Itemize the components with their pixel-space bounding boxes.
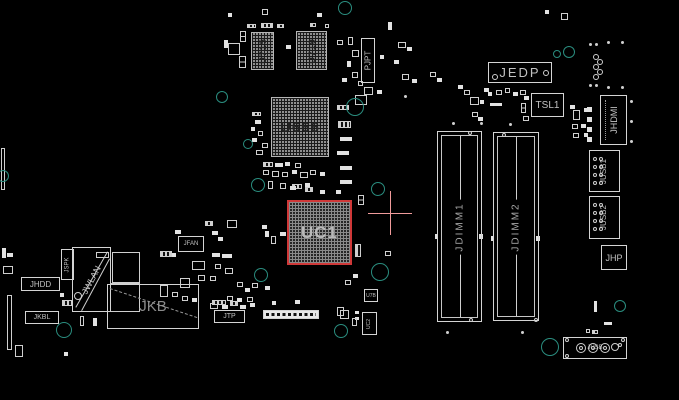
test-point-dot <box>509 123 512 126</box>
hole-circle <box>543 70 549 76</box>
passive-part <box>581 124 586 128</box>
passive-part <box>237 282 243 287</box>
test-point-dot <box>521 331 524 334</box>
passive-part <box>272 301 276 305</box>
passive-part <box>218 237 223 241</box>
connector-label: JHDD <box>30 280 51 289</box>
selection-corner-mark <box>287 259 293 265</box>
passive-part <box>277 24 284 28</box>
passive-part <box>587 107 592 112</box>
passive-part <box>265 231 269 237</box>
selection-corner-mark <box>347 259 352 265</box>
passive-part <box>262 143 268 148</box>
pin-header-pins <box>266 313 316 316</box>
test-point-dot <box>589 43 592 46</box>
passive-part <box>340 137 352 141</box>
test-point-dot <box>630 140 633 143</box>
test-point-dot <box>630 120 633 123</box>
hole-circle <box>593 74 599 80</box>
passive-part <box>227 220 237 228</box>
passive-part <box>262 9 268 15</box>
via-marker <box>541 338 559 356</box>
via-marker <box>338 1 352 15</box>
passive-part <box>192 261 205 270</box>
usb-pin-circle <box>593 157 597 161</box>
hole-circle <box>621 338 625 342</box>
connector-label: U7B <box>366 293 376 299</box>
passive-part <box>239 56 246 68</box>
passive-part <box>7 295 12 350</box>
usb-pin-circle <box>599 173 603 177</box>
via-marker <box>614 300 626 312</box>
passive-part <box>252 283 258 288</box>
passive-part <box>480 100 484 104</box>
passive-part <box>402 74 409 80</box>
passive-part <box>240 305 246 309</box>
connector-jhdmi[interactable]: JHDMI <box>600 95 627 145</box>
hole-circle <box>468 131 472 135</box>
passive-part <box>317 13 322 17</box>
passive-part <box>280 183 286 189</box>
passive-part <box>271 236 276 244</box>
passive-part <box>520 90 526 95</box>
usb-pin-circle <box>593 203 597 207</box>
passive-part <box>398 42 406 48</box>
passive-part <box>592 330 598 334</box>
test-point-dot <box>589 84 592 87</box>
connector-label: JTP <box>223 313 235 320</box>
via-marker <box>254 268 268 282</box>
connector-label: PJPT <box>364 51 373 71</box>
passive-part <box>524 96 529 100</box>
board-canvas[interactable]: U715U719U666UC1JDIMM1JDIMM2PJPTJEDPTSL1J… <box>0 0 679 400</box>
jusb-pin-inner <box>579 346 583 350</box>
usb-pin-circle <box>599 203 603 207</box>
usb-pin-circle <box>593 227 597 231</box>
passive-part <box>464 90 470 95</box>
passive-part <box>594 301 597 312</box>
passive-part <box>286 45 291 49</box>
connector-jtp[interactable]: JTP <box>214 310 245 323</box>
connector-jkbl[interactable]: JKBL <box>25 311 59 324</box>
connector-tsl1[interactable]: TSL1 <box>531 93 564 117</box>
usb-pin-circle <box>593 219 597 223</box>
passive-part <box>523 116 529 121</box>
passive-part <box>364 87 373 95</box>
via-marker <box>553 50 561 58</box>
hole-circle <box>502 133 506 137</box>
passive-part <box>228 43 240 55</box>
passive-part <box>570 105 575 109</box>
bga-chip-u719[interactable]: U719 <box>296 31 327 70</box>
connector-label: TSL1 <box>536 100 560 111</box>
passive-part <box>205 221 213 226</box>
via-marker <box>0 170 9 182</box>
passive-part <box>586 329 590 333</box>
passive-part <box>342 78 347 82</box>
passive-part <box>358 195 364 205</box>
passive-part <box>80 316 84 326</box>
passive-part <box>247 297 253 302</box>
passive-part <box>1 148 5 190</box>
passive-part <box>478 117 483 121</box>
passive-part <box>310 23 316 27</box>
passive-part <box>587 127 592 132</box>
via-marker <box>216 91 228 103</box>
connector-jfan[interactable]: JFAN <box>178 236 204 252</box>
passive-part <box>261 23 273 28</box>
passive-part <box>305 187 313 192</box>
crosshair-marker <box>390 191 391 235</box>
passive-part <box>245 288 250 292</box>
selected-bga-chip-uc1[interactable]: UC1 <box>287 200 352 265</box>
connector-label: UC2 <box>366 318 372 328</box>
passive-part <box>222 305 228 309</box>
usb-pin-circle <box>593 165 597 169</box>
test-point-dot <box>621 41 624 44</box>
via-marker <box>563 46 575 58</box>
test-point-dot <box>621 86 624 89</box>
connector-label: JEDP <box>499 65 540 80</box>
passive-part <box>93 318 97 326</box>
passive-part <box>250 303 255 307</box>
passive-part <box>252 138 257 142</box>
passive-part <box>353 274 358 278</box>
connector-u7b[interactable]: U7B <box>364 289 378 302</box>
dimm-slot-jdimm1[interactable]: JDIMM1 <box>437 131 482 322</box>
hole-circle <box>565 338 569 342</box>
via-marker <box>371 182 385 196</box>
passive-part <box>337 151 349 155</box>
passive-part <box>545 10 549 14</box>
passive-part <box>412 79 417 83</box>
test-point-dot <box>452 122 455 125</box>
hole-circle <box>534 318 538 322</box>
via-marker <box>334 324 348 338</box>
passive-part <box>262 225 267 229</box>
chip-label: U715 <box>258 38 268 64</box>
passive-part <box>458 85 463 89</box>
passive-part <box>255 120 261 124</box>
passive-part <box>325 24 329 28</box>
passive-part <box>336 190 341 194</box>
via-marker <box>346 98 364 116</box>
hole-circle <box>492 74 498 80</box>
passive-part <box>513 92 518 96</box>
passive-part <box>470 97 479 105</box>
passive-part <box>394 60 399 64</box>
usb-pin-circle <box>599 211 603 215</box>
connector-jhp[interactable]: JHP <box>601 245 627 270</box>
passive-part <box>355 244 361 257</box>
usb-pin-circle <box>599 165 603 169</box>
passive-part <box>573 133 579 138</box>
passive-part <box>587 137 592 142</box>
passive-part <box>320 172 325 176</box>
bga-chip-u666[interactable]: U666 <box>271 97 329 157</box>
usb-pin-circle <box>593 211 597 215</box>
passive-part <box>228 13 232 17</box>
passive-part <box>64 352 68 356</box>
passive-part <box>337 40 343 45</box>
passive-part <box>15 345 23 357</box>
passive-part <box>377 90 382 94</box>
test-point-dot <box>607 41 610 44</box>
hole-circle <box>469 318 473 322</box>
passive-part <box>320 190 325 194</box>
passive-part <box>352 318 357 326</box>
passive-part <box>295 163 301 168</box>
passive-part <box>292 170 297 174</box>
via-marker <box>243 139 253 149</box>
passive-part <box>490 103 502 106</box>
passive-part <box>198 275 205 281</box>
test-point-dot <box>404 95 407 98</box>
passive-part <box>215 264 221 269</box>
passive-part <box>272 171 279 177</box>
passive-part <box>172 253 176 257</box>
passive-part <box>240 31 246 42</box>
passive-part <box>345 280 351 285</box>
test-point-dot <box>446 331 449 334</box>
passive-part <box>62 300 72 306</box>
chip-label: UC1 <box>301 223 338 243</box>
passive-part <box>380 55 384 59</box>
passive-part <box>561 13 568 20</box>
passive-part <box>263 162 273 167</box>
passive-part <box>275 163 283 167</box>
connector-label: JHDMI <box>609 106 619 134</box>
test-point-dot <box>630 100 633 103</box>
passive-part <box>388 22 392 30</box>
passive-part <box>348 37 353 45</box>
passive-part <box>222 254 232 258</box>
test-point-dot <box>595 43 598 46</box>
connector-pjpt[interactable]: PJPT <box>361 38 375 83</box>
usb-pin-circle <box>599 181 603 185</box>
via-marker <box>251 178 265 192</box>
passive-part <box>60 293 64 297</box>
passive-part <box>295 300 300 304</box>
hole-circle <box>565 354 569 358</box>
passive-part <box>347 61 351 67</box>
connector-uc2[interactable]: UC2 <box>362 312 377 335</box>
connector-label: JFAN <box>184 241 199 247</box>
via-marker <box>371 263 389 281</box>
usb-pin-circle <box>599 219 603 223</box>
passive-part <box>587 117 592 122</box>
passive-part <box>256 150 263 155</box>
bga-chip-u715[interactable]: U715 <box>251 32 274 70</box>
passive-part <box>340 180 352 184</box>
passive-part <box>407 47 412 51</box>
passive-part <box>230 301 238 306</box>
test-point-dot <box>607 86 610 89</box>
passive-part <box>212 300 226 305</box>
passive-part <box>282 172 288 177</box>
dimm-slot-jdimm2[interactable]: JDIMM2 <box>493 132 539 321</box>
passive-part <box>496 90 502 95</box>
passive-part <box>572 124 578 129</box>
passive-part <box>352 72 358 78</box>
passive-part <box>175 230 181 234</box>
connector-label: JSPK <box>65 257 71 272</box>
passive-part <box>265 286 270 290</box>
chip-label: U719 <box>306 38 316 64</box>
passive-part <box>160 251 172 257</box>
passive-part <box>355 311 359 314</box>
passive-part <box>280 232 286 236</box>
hole-circle <box>618 343 622 347</box>
dimm-label: JDIMM2 <box>511 199 522 254</box>
test-point-dot <box>595 84 598 87</box>
hole-circle <box>74 292 82 300</box>
passive-part <box>268 181 273 189</box>
usb-pin-circle <box>593 173 597 177</box>
passive-part <box>604 322 612 325</box>
passive-part <box>340 310 349 319</box>
passive-part <box>112 252 140 283</box>
passive-part <box>430 72 436 77</box>
passive-part <box>285 162 290 166</box>
passive-part <box>212 253 220 257</box>
connector-jhdd[interactable]: JHDD <box>21 277 60 291</box>
passive-part <box>338 121 351 128</box>
passive-part <box>263 170 269 175</box>
jusb-pin-inner <box>591 346 595 350</box>
passive-part <box>437 78 442 82</box>
passive-part <box>521 103 526 113</box>
pin-header[interactable] <box>263 310 319 319</box>
passive-part <box>385 251 391 256</box>
hdmi-pin-dots <box>605 100 606 140</box>
passive-part <box>212 231 218 235</box>
passive-part <box>258 131 263 136</box>
usb-pin-circle <box>599 157 603 161</box>
via-marker <box>56 322 72 338</box>
passive-part <box>3 266 13 274</box>
passive-part <box>340 166 352 170</box>
selection-corner-mark <box>347 200 352 206</box>
passive-part <box>225 268 233 274</box>
passive-part <box>310 170 316 175</box>
passive-part <box>210 276 216 281</box>
passive-part <box>7 253 13 257</box>
chip-label: U666 <box>280 119 320 136</box>
test-point-dot <box>480 122 483 125</box>
usb-pin-circle <box>599 227 603 231</box>
passive-part <box>488 92 492 96</box>
passive-part <box>505 88 510 93</box>
passive-part <box>247 24 256 28</box>
jusb-pin-inner <box>603 346 607 350</box>
selection-corner-mark <box>287 200 293 206</box>
passive-part <box>352 50 359 57</box>
passive-part <box>573 110 580 120</box>
passive-part <box>251 127 255 131</box>
passive-part <box>2 248 6 258</box>
passive-part <box>252 112 261 116</box>
passive-part <box>290 186 296 190</box>
dimm-label: JDIMM1 <box>454 199 465 254</box>
connector-label: JKBL <box>34 314 51 321</box>
connector-label: JHP <box>605 253 622 263</box>
usb-pin-circle <box>593 181 597 185</box>
connector-label: JUSB1 <box>599 159 608 184</box>
passive-part <box>300 172 308 178</box>
